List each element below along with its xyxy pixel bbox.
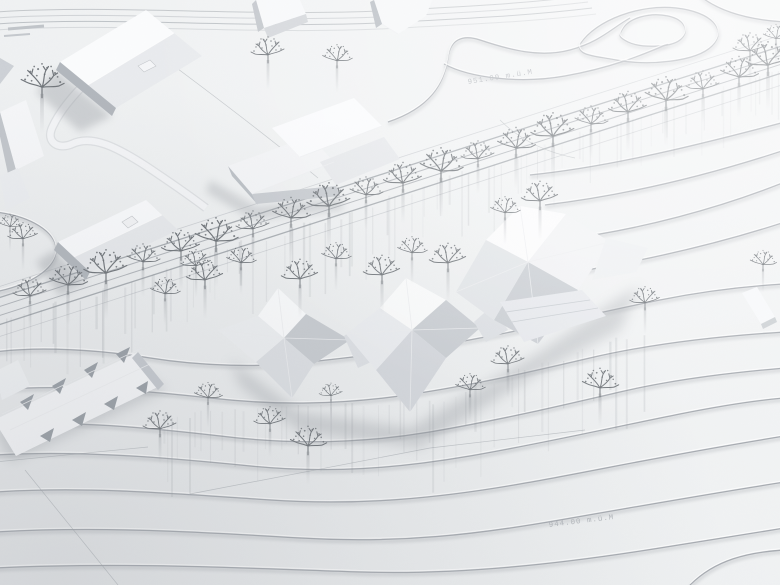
photo-grain xyxy=(0,0,780,585)
architectural-model-photo: 951.00 m.ü.M 944.00 m.ü.M xyxy=(0,0,780,585)
